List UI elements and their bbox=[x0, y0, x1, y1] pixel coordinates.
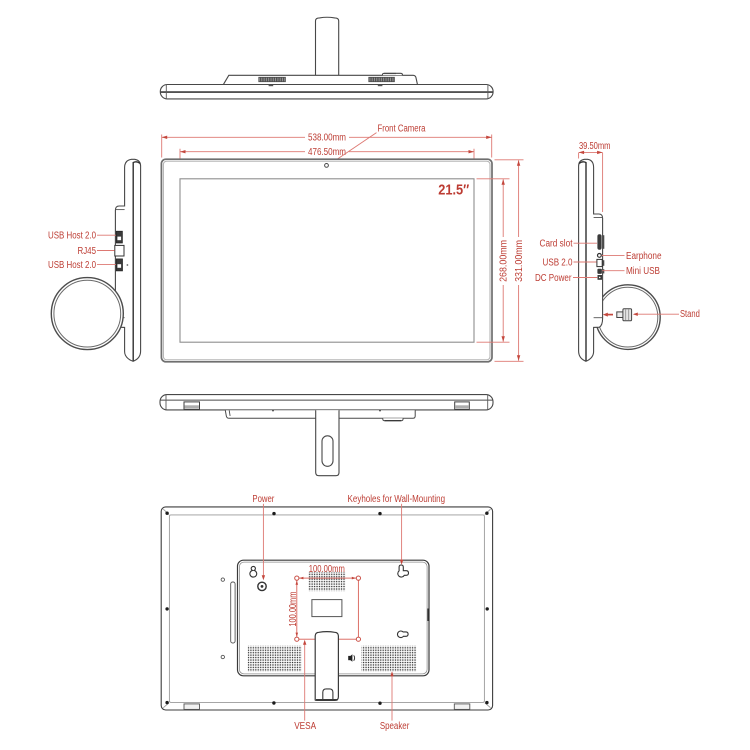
svg-text:538.00mm: 538.00mm bbox=[308, 133, 346, 144]
svg-text:100.00mm: 100.00mm bbox=[309, 564, 345, 575]
svg-text:21.5″: 21.5″ bbox=[438, 182, 469, 198]
svg-text:Card slot: Card slot bbox=[540, 238, 573, 249]
svg-text:Power: Power bbox=[252, 494, 275, 505]
svg-text:476.50mm: 476.50mm bbox=[308, 147, 346, 158]
svg-text:39.50mm: 39.50mm bbox=[579, 141, 611, 152]
svg-text:100.00mm: 100.00mm bbox=[288, 592, 299, 627]
svg-text:VESA: VESA bbox=[294, 721, 316, 732]
svg-text:Speaker: Speaker bbox=[380, 721, 410, 732]
svg-text:USB 2.0: USB 2.0 bbox=[543, 257, 574, 268]
svg-text:DC Power: DC Power bbox=[535, 273, 572, 284]
svg-text:268.00mm: 268.00mm bbox=[499, 240, 510, 282]
svg-text:RJ45: RJ45 bbox=[78, 246, 97, 257]
svg-text:Earphone: Earphone bbox=[626, 251, 662, 262]
svg-text:Front Camera: Front Camera bbox=[378, 123, 426, 134]
svg-text:Stand: Stand bbox=[680, 309, 700, 320]
svg-text:USB Host 2.0: USB Host 2.0 bbox=[48, 231, 96, 242]
svg-text:Keyholes for Wall-Mounting: Keyholes for Wall-Mounting bbox=[348, 494, 446, 505]
svg-text:Mini USB: Mini USB bbox=[626, 266, 660, 277]
svg-text:USB Host 2.0: USB Host 2.0 bbox=[48, 260, 96, 271]
svg-text:331.00mm: 331.00mm bbox=[514, 240, 525, 282]
